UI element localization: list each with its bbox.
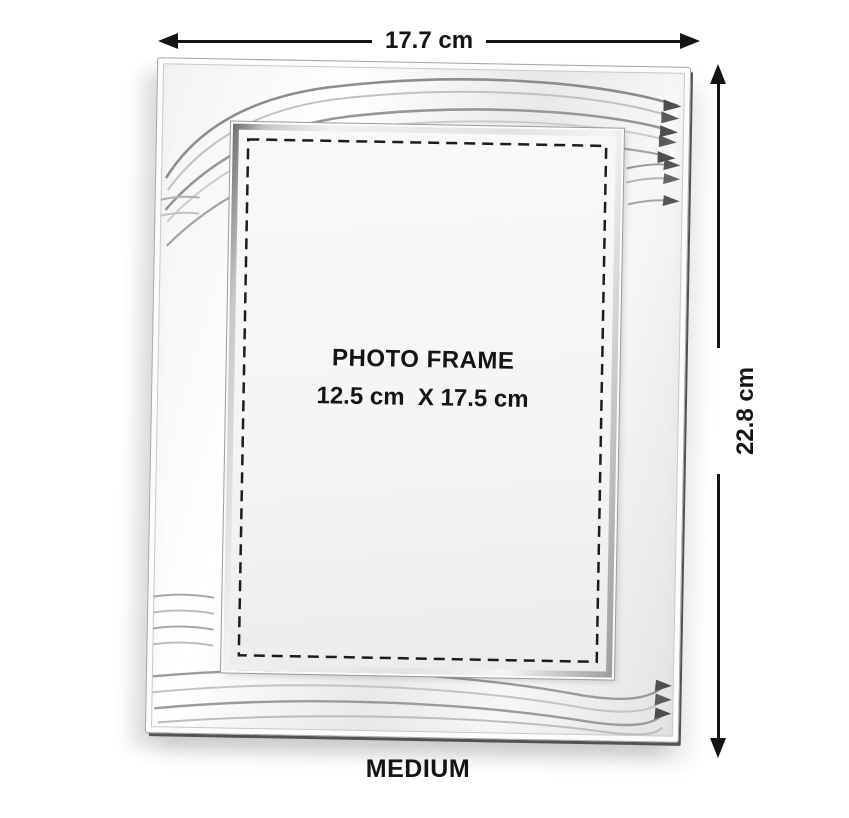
- height-dimension-label: 22.8 cm: [732, 367, 760, 455]
- product-dimension-image: 17.7 cm 22.8 cm: [0, 0, 849, 818]
- photo-placeholder: PHOTO FRAME 12.5 cm X 17.5 cm: [229, 130, 616, 672]
- frame-opening: PHOTO FRAME 12.5 cm X 17.5 cm: [223, 124, 622, 678]
- arrow-right-icon: [680, 33, 700, 49]
- width-dimension-line: [486, 40, 680, 43]
- height-dimension-line: [717, 474, 720, 738]
- width-dimension: 17.7 cm: [158, 28, 700, 54]
- height-dimension-line: [717, 84, 720, 348]
- height-dimension-label-wrap: 22.8 cm: [702, 348, 734, 474]
- height-dimension: 22.8 cm: [702, 64, 734, 758]
- placeholder-title: PHOTO FRAME: [332, 344, 515, 375]
- arrow-down-icon: [710, 738, 726, 758]
- arrow-left-icon: [158, 33, 178, 49]
- width-dimension-label: 17.7 cm: [372, 27, 486, 55]
- width-dimension-line: [178, 40, 372, 43]
- arrow-up-icon: [710, 64, 726, 84]
- size-label: MEDIUM: [151, 755, 685, 784]
- placeholder-size: 12.5 cm X 17.5 cm: [316, 382, 529, 414]
- placeholder-text-block: PHOTO FRAME 12.5 cm X 17.5 cm: [230, 108, 617, 650]
- photo-frame: PHOTO FRAME 12.5 cm X 17.5 cm: [145, 57, 691, 743]
